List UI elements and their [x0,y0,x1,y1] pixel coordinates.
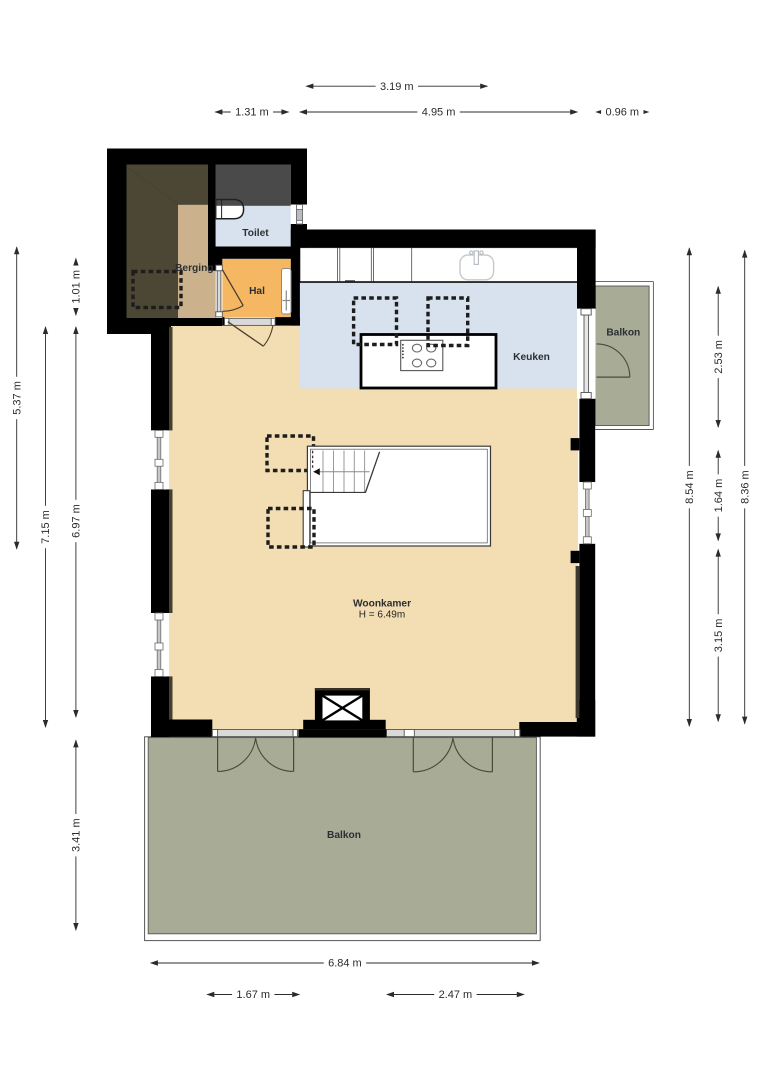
svg-text:1.67 m: 1.67 m [236,989,270,1001]
svg-text:1.01 m: 1.01 m [71,270,83,304]
svg-text:3.15 m: 3.15 m [713,619,725,653]
svg-text:Hal: Hal [249,286,265,297]
svg-text:Toilet: Toilet [242,228,269,239]
svg-text:Balkon: Balkon [327,830,361,841]
svg-text:6.84 m: 6.84 m [328,958,362,970]
svg-text:Balkon: Balkon [606,327,640,338]
svg-text:6.97 m: 6.97 m [71,504,83,538]
svg-text:Keuken: Keuken [513,352,550,363]
svg-text:0.96 m: 0.96 m [605,107,639,119]
svg-text:3.19 m: 3.19 m [380,81,414,93]
svg-text:H = 6.49m: H = 6.49m [359,610,405,621]
svg-text:5.37 m: 5.37 m [11,381,23,415]
svg-text:4.95 m: 4.95 m [422,107,456,119]
svg-text:8.36 m: 8.36 m [739,470,751,504]
svg-text:2.53 m: 2.53 m [713,340,725,374]
svg-text:7.15 m: 7.15 m [40,510,52,544]
svg-text:Woonkamer: Woonkamer [353,599,411,610]
svg-text:8.54 m: 8.54 m [684,470,696,504]
svg-text:1.31 m: 1.31 m [235,107,269,119]
svg-text:2.47 m: 2.47 m [439,989,473,1001]
svg-text:1.64 m: 1.64 m [713,479,725,513]
svg-text:3.41 m: 3.41 m [71,818,83,852]
svg-text:Berging: Berging [175,263,214,274]
